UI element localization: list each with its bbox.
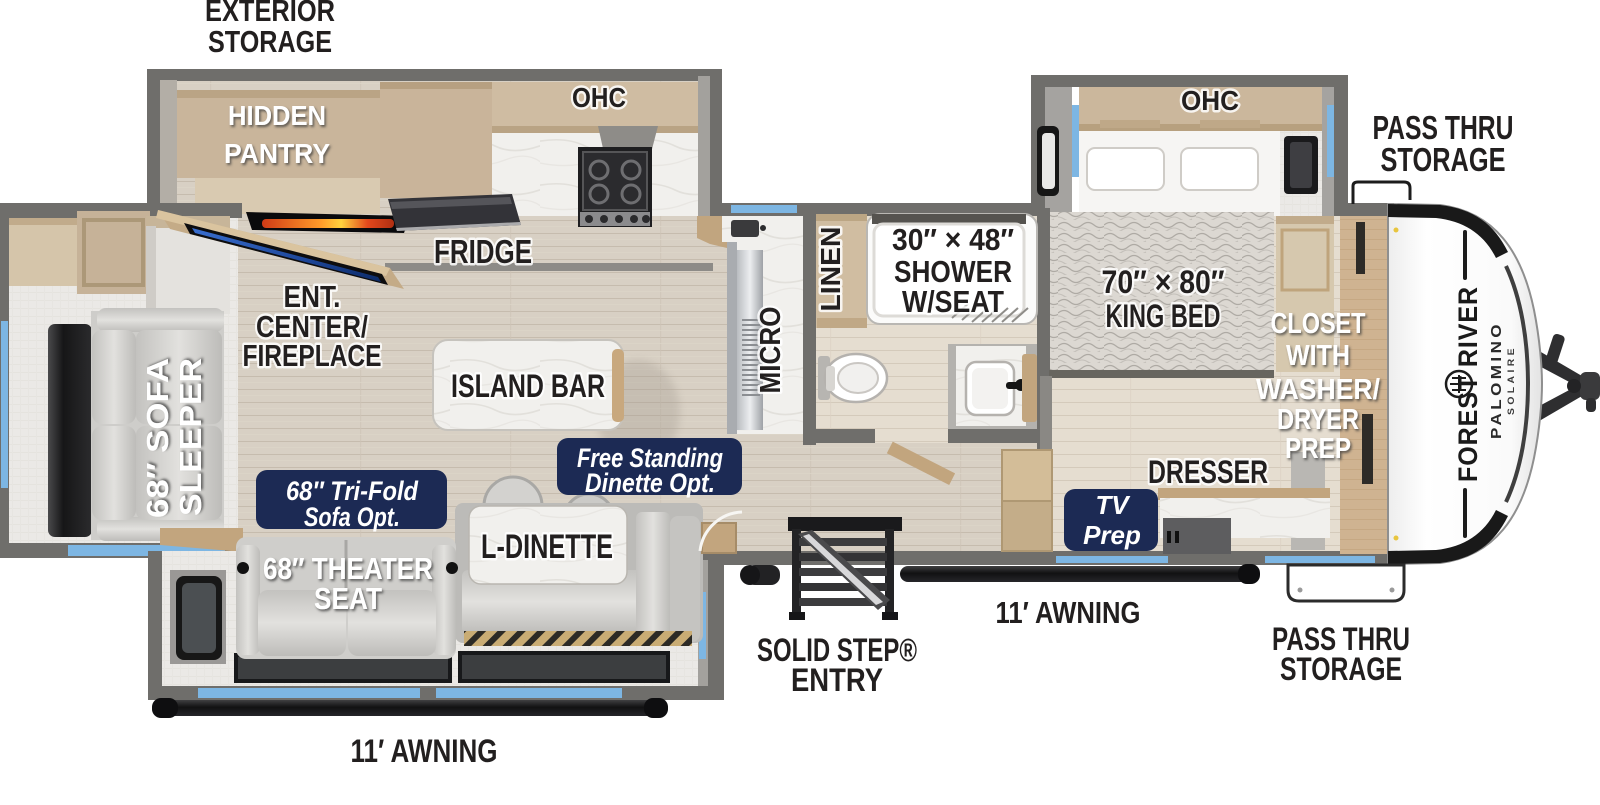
svg-text:FOREST RIVER: FOREST RIVER bbox=[1453, 286, 1483, 482]
svg-text:STORAGE: STORAGE bbox=[1280, 651, 1402, 687]
svg-text:PALOMINO: PALOMINO bbox=[1488, 321, 1505, 439]
svg-text:OHC: OHC bbox=[1181, 85, 1239, 116]
svg-text:L-DINETTE: L-DINETTE bbox=[481, 528, 613, 566]
svg-text:STORAGE: STORAGE bbox=[1381, 141, 1506, 178]
svg-text:ENTRY: ENTRY bbox=[791, 662, 883, 698]
svg-text:SOLAIRE: SOLAIRE bbox=[1506, 345, 1516, 415]
svg-text:PANTRY: PANTRY bbox=[224, 138, 330, 169]
svg-text:WITH: WITH bbox=[1286, 340, 1350, 372]
svg-text:Sofa Opt.: Sofa Opt. bbox=[304, 502, 400, 532]
svg-text:11′ AWNING: 11′ AWNING bbox=[996, 595, 1141, 630]
svg-text:FRIDGE: FRIDGE bbox=[434, 233, 532, 270]
svg-text:Dinette Opt.: Dinette Opt. bbox=[585, 468, 715, 498]
svg-text:OHC: OHC bbox=[572, 82, 626, 113]
svg-text:FIREPLACE: FIREPLACE bbox=[243, 338, 382, 373]
svg-text:STORAGE: STORAGE bbox=[208, 24, 332, 59]
svg-text:11′ AWNING: 11′ AWNING bbox=[351, 733, 498, 769]
svg-text:68″ SOFA: 68″ SOFA bbox=[140, 358, 175, 518]
svg-text:DRESSER: DRESSER bbox=[1148, 454, 1268, 490]
svg-text:SEAT: SEAT bbox=[314, 581, 382, 616]
svg-text:MICRO: MICRO bbox=[755, 307, 787, 394]
svg-text:WASHER/: WASHER/ bbox=[1256, 374, 1380, 406]
svg-text:ISLAND BAR: ISLAND BAR bbox=[451, 368, 605, 404]
svg-text:TV: TV bbox=[1095, 490, 1131, 520]
svg-text:KING BED: KING BED bbox=[1106, 298, 1221, 334]
svg-text:CLOSET: CLOSET bbox=[1271, 308, 1366, 340]
svg-text:W/SEAT: W/SEAT bbox=[902, 284, 1004, 319]
svg-text:SLEEPER: SLEEPER bbox=[173, 358, 208, 516]
svg-text:70″ × 80″: 70″ × 80″ bbox=[1102, 264, 1225, 300]
svg-text:Prep: Prep bbox=[1083, 520, 1141, 550]
svg-text:30″ × 48″: 30″ × 48″ bbox=[892, 222, 1014, 257]
svg-text:PREP: PREP bbox=[1285, 433, 1351, 465]
svg-text:HIDDEN: HIDDEN bbox=[228, 100, 326, 131]
svg-text:DRYER: DRYER bbox=[1277, 404, 1359, 436]
svg-text:LINEN: LINEN bbox=[815, 227, 846, 312]
